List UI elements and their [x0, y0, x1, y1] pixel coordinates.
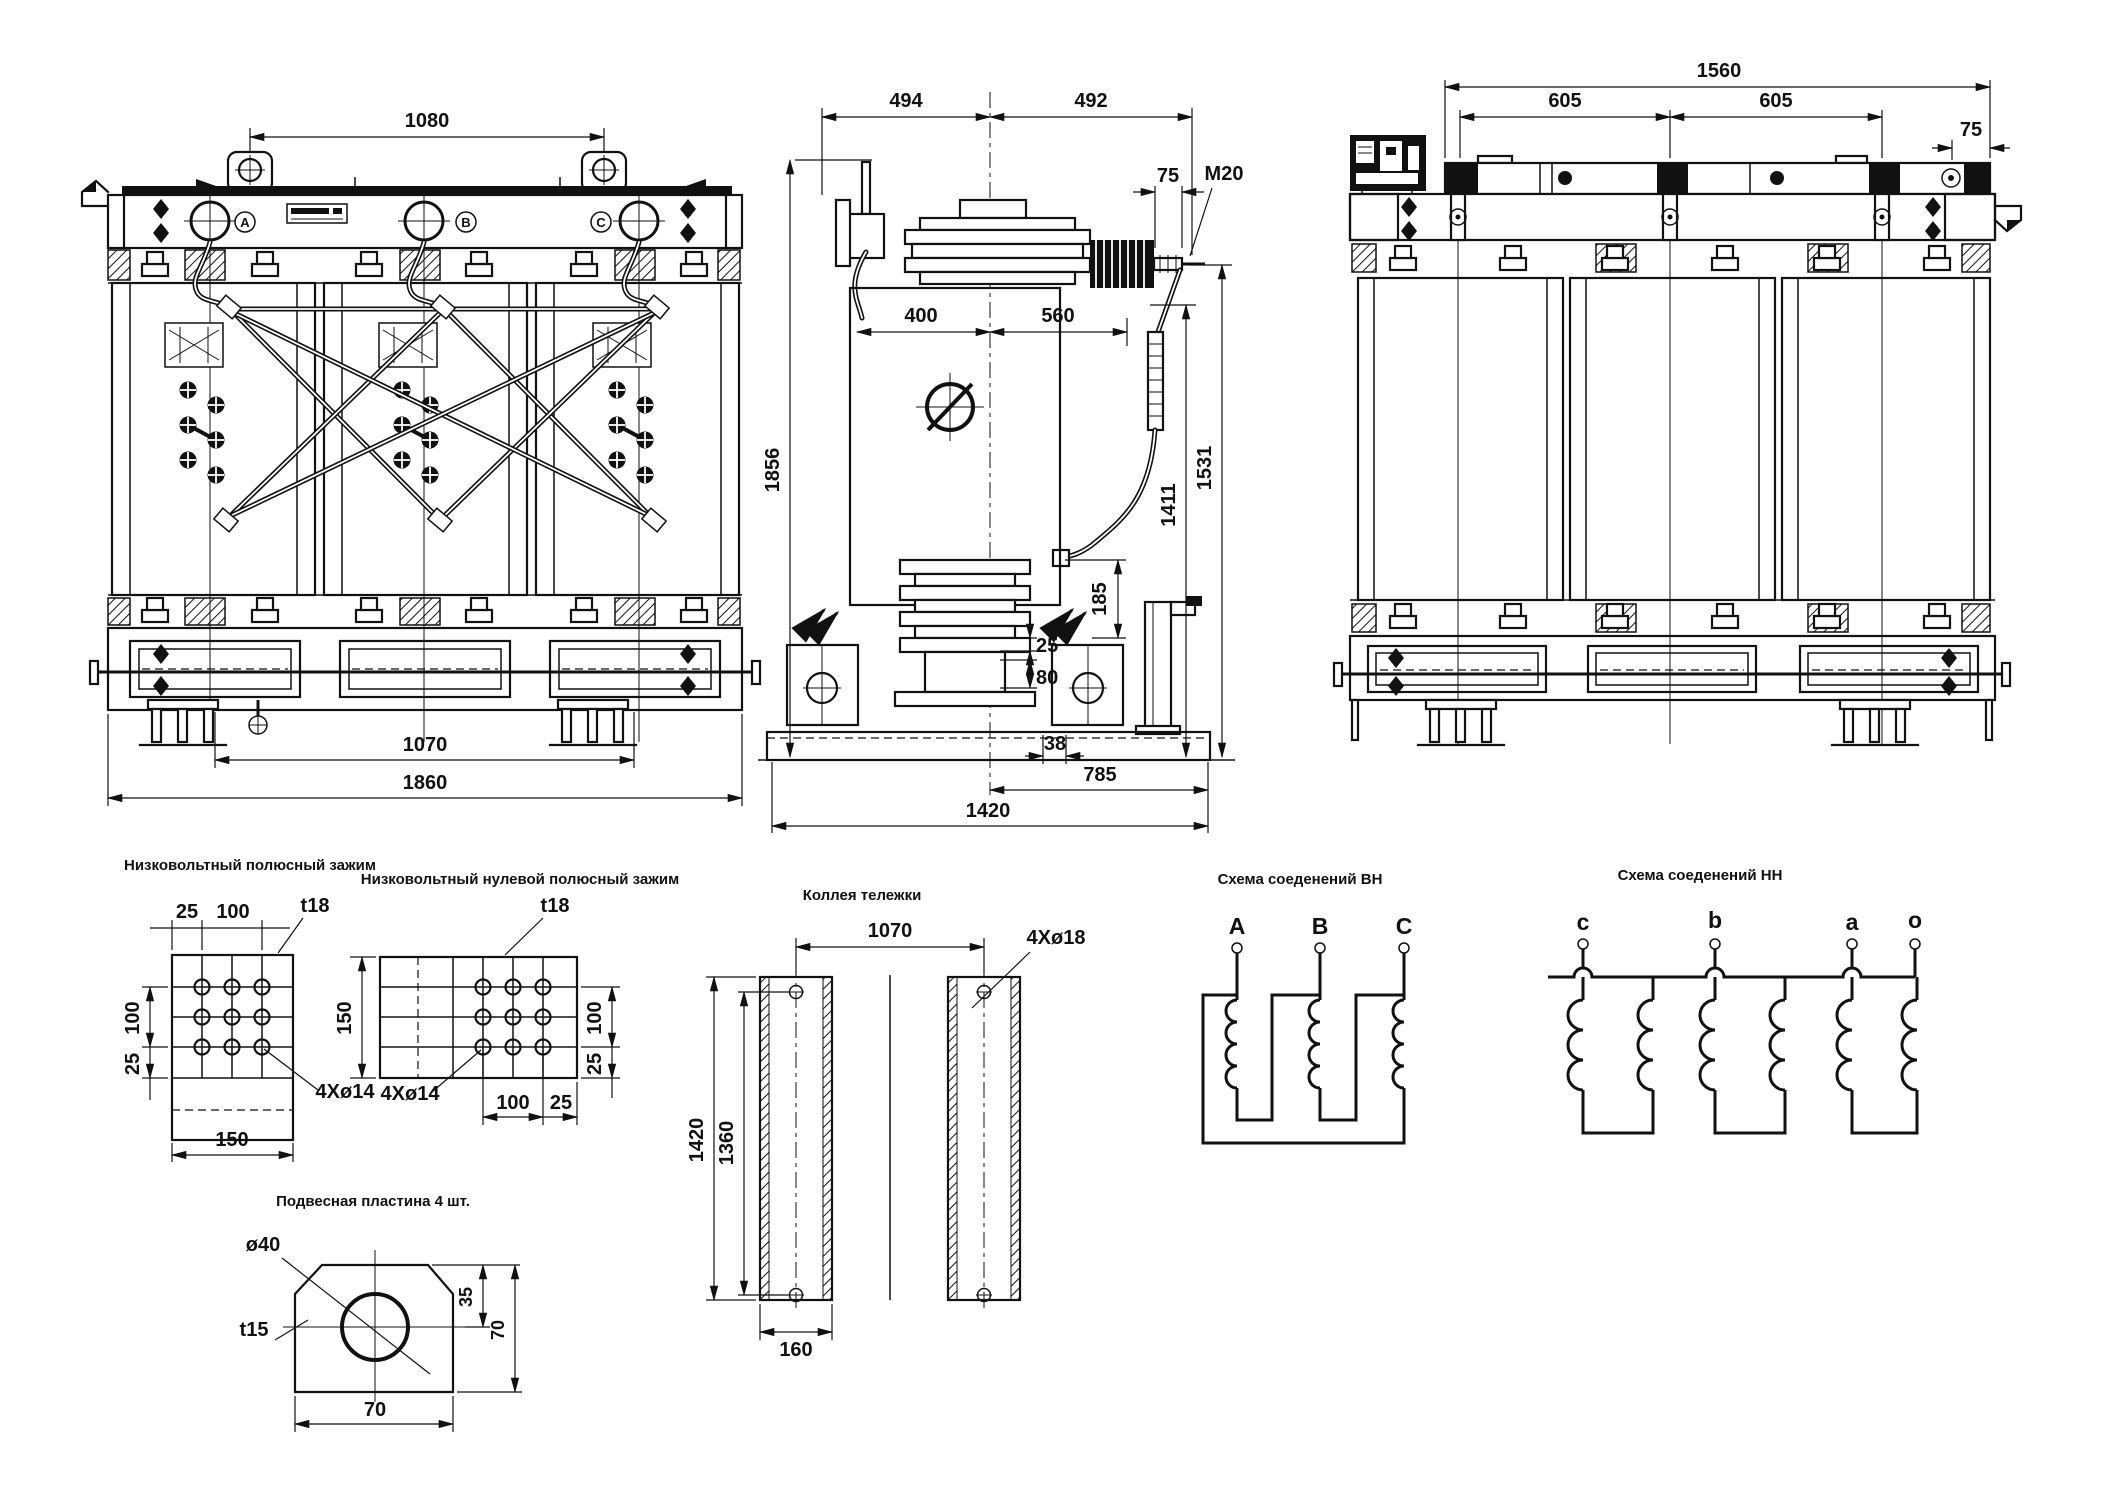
dim-stud: 75: [1157, 165, 1179, 187]
terminal-bolt-cluster: [609, 382, 654, 484]
dim-terminal-height: 1411: [1158, 483, 1180, 526]
valve-icon: [916, 373, 984, 441]
svg-text:A: A: [240, 215, 250, 230]
dim-tank-left: 400: [904, 305, 937, 327]
dim-right-half: 492: [1074, 90, 1107, 112]
dim-pitch: 100: [216, 901, 249, 923]
terminal-label: c: [1577, 909, 1590, 935]
dim-half-base: 785: [1083, 764, 1116, 786]
lower-clamp-row: [108, 595, 742, 625]
jack-stand: [1136, 596, 1202, 734]
wheel-box: [1052, 645, 1123, 725]
base-frame: [90, 628, 760, 710]
terminal-label: o: [1908, 907, 1922, 933]
terminal-bolt-cluster: [180, 382, 225, 484]
dim-overall-width: 1560: [1697, 60, 1742, 82]
lv-neutral-pole-clamp-detail: Низковольтный нулевой полюсный зажим t18…: [334, 871, 679, 1125]
dim-pitch-v: 100: [122, 1001, 144, 1034]
svg-text:B: B: [461, 215, 470, 230]
dim-tank-right: 560: [1041, 305, 1074, 327]
delta-winding-diagram: [1203, 953, 1404, 1143]
dim-pitch-right: 605: [1759, 90, 1792, 112]
dim-holes: 4Xø14: [316, 1081, 376, 1103]
dim-thickness: t18: [541, 895, 570, 917]
trolley-track-detail: Коллея тележки 1070 4Xø18 1420 1360 160: [686, 887, 1085, 1361]
terminal-label: a: [1846, 909, 1859, 935]
dim-hole: ø40: [246, 1234, 280, 1256]
section-arrow-icon: [686, 179, 706, 186]
rail: [948, 962, 1020, 1312]
dim-edge-v: 25: [122, 1053, 144, 1075]
dim-edge: 25: [176, 901, 198, 923]
dim-edge-v: 25: [584, 1053, 606, 1075]
dim-end-offset: 75: [1960, 119, 1982, 141]
dim-base-length: 1420: [966, 800, 1011, 822]
suspension-plate-detail: Подвесная пластина 4 шт. ø40 t15 35 70 7…: [240, 1193, 522, 1432]
tap-link-block: [165, 323, 223, 367]
dim-rail-width: 160: [779, 1339, 812, 1361]
dim-plate: 38: [1044, 733, 1066, 755]
winding-column: [1570, 278, 1775, 600]
wheel-assembly: [1832, 700, 1918, 745]
detail-title: Подвесная пластина 4 шт.: [276, 1193, 470, 1210]
svg-text:C: C: [596, 215, 606, 230]
dim-width: 150: [215, 1129, 248, 1151]
transformer-engineering-drawing: 1080 A: [0, 0, 2127, 1499]
rear-view: 1560 605 605 75: [1334, 60, 2021, 745]
dim-overall-height: 1856: [762, 448, 784, 493]
detail-title: Низковольтный нулевой полюсный зажим: [361, 871, 679, 888]
hv-bushing-stack: [836, 162, 1205, 318]
dim-pitch-v: 100: [584, 1001, 606, 1034]
dim-gap: 25: [1036, 635, 1058, 657]
dim-edge-h: 25: [550, 1092, 572, 1114]
towing-hook-icon: [1995, 206, 2021, 231]
detail-title: Низковольтный полюсный зажим: [124, 857, 376, 874]
terminal-label: C: [1396, 913, 1413, 939]
dim-height: 150: [334, 1001, 356, 1034]
dim-thread: M20: [1205, 163, 1244, 185]
dim-holes: 4Xø18: [1027, 927, 1086, 949]
dim-bracket: 185: [1089, 582, 1111, 615]
star-winding-diagram: [1548, 949, 1917, 1133]
dim-height: 70: [488, 1320, 508, 1340]
front-view: 1080 A: [82, 110, 760, 806]
lower-clamp-row: [1350, 600, 1995, 632]
dim-left-half: 494: [889, 90, 923, 112]
grounding-terminal-icon: [249, 700, 267, 734]
dim-holes: 4Xø14: [381, 1083, 441, 1105]
detail-title: Схема соеденений НН: [1618, 867, 1783, 884]
tank-body: [850, 288, 1060, 605]
detail-title: Схема соеденений ВН: [1218, 871, 1383, 888]
rear-top-beam: [1445, 163, 1990, 194]
rating-plate: [1350, 135, 1426, 199]
dim-thickness: t18: [301, 895, 330, 917]
dim-half-height: 35: [456, 1287, 476, 1307]
drawing-sheet: 1080 A: [0, 0, 2127, 1499]
lv-connection-schema: Схема соеденений НН c b a o: [1548, 867, 1922, 1133]
winding-column: [1782, 278, 1990, 600]
dim-wheel-span: 1070: [403, 734, 448, 756]
terminal-label: A: [1229, 913, 1246, 939]
terminal-label: b: [1708, 907, 1722, 933]
dim-pitch-left: 605: [1548, 90, 1581, 112]
detail-title: Коллея тележки: [803, 887, 922, 904]
dim-lug-spacing: 1080: [405, 110, 450, 132]
section-arrow-icon: [196, 179, 216, 186]
dim-pitch-h: 100: [496, 1092, 529, 1114]
towing-hook-icon: [82, 181, 108, 206]
rail: [760, 962, 832, 1312]
dim-overall-width: 1860: [403, 772, 448, 794]
dim-length: 1420: [686, 1118, 708, 1163]
base-frame: [1334, 636, 2010, 700]
wheel-assembly: [140, 700, 226, 745]
dim-thickness: t15: [240, 1319, 269, 1341]
upper-clamp-row: [1350, 240, 1995, 272]
wheel-assembly: [550, 700, 636, 745]
wheel-box: [787, 645, 858, 725]
dim-stud-height: 1531: [1194, 446, 1216, 491]
dim-hole-span: 1360: [716, 1121, 738, 1166]
nameplate: [287, 204, 347, 223]
wheel-assembly: [1418, 700, 1504, 745]
dim-pad: 80: [1036, 667, 1058, 689]
dim-gauge: 1070: [868, 920, 913, 942]
dim-width: 70: [364, 1399, 386, 1421]
hv-connection-schema: Схема соеденений ВН A B C: [1203, 871, 1412, 1143]
terminal-label: B: [1312, 913, 1329, 939]
side-view: 494 492 75 M20: [758, 90, 1243, 833]
base-plate: [767, 732, 1210, 760]
winding-column: [1358, 278, 1563, 600]
lv-terminal-stack: [895, 560, 1035, 706]
